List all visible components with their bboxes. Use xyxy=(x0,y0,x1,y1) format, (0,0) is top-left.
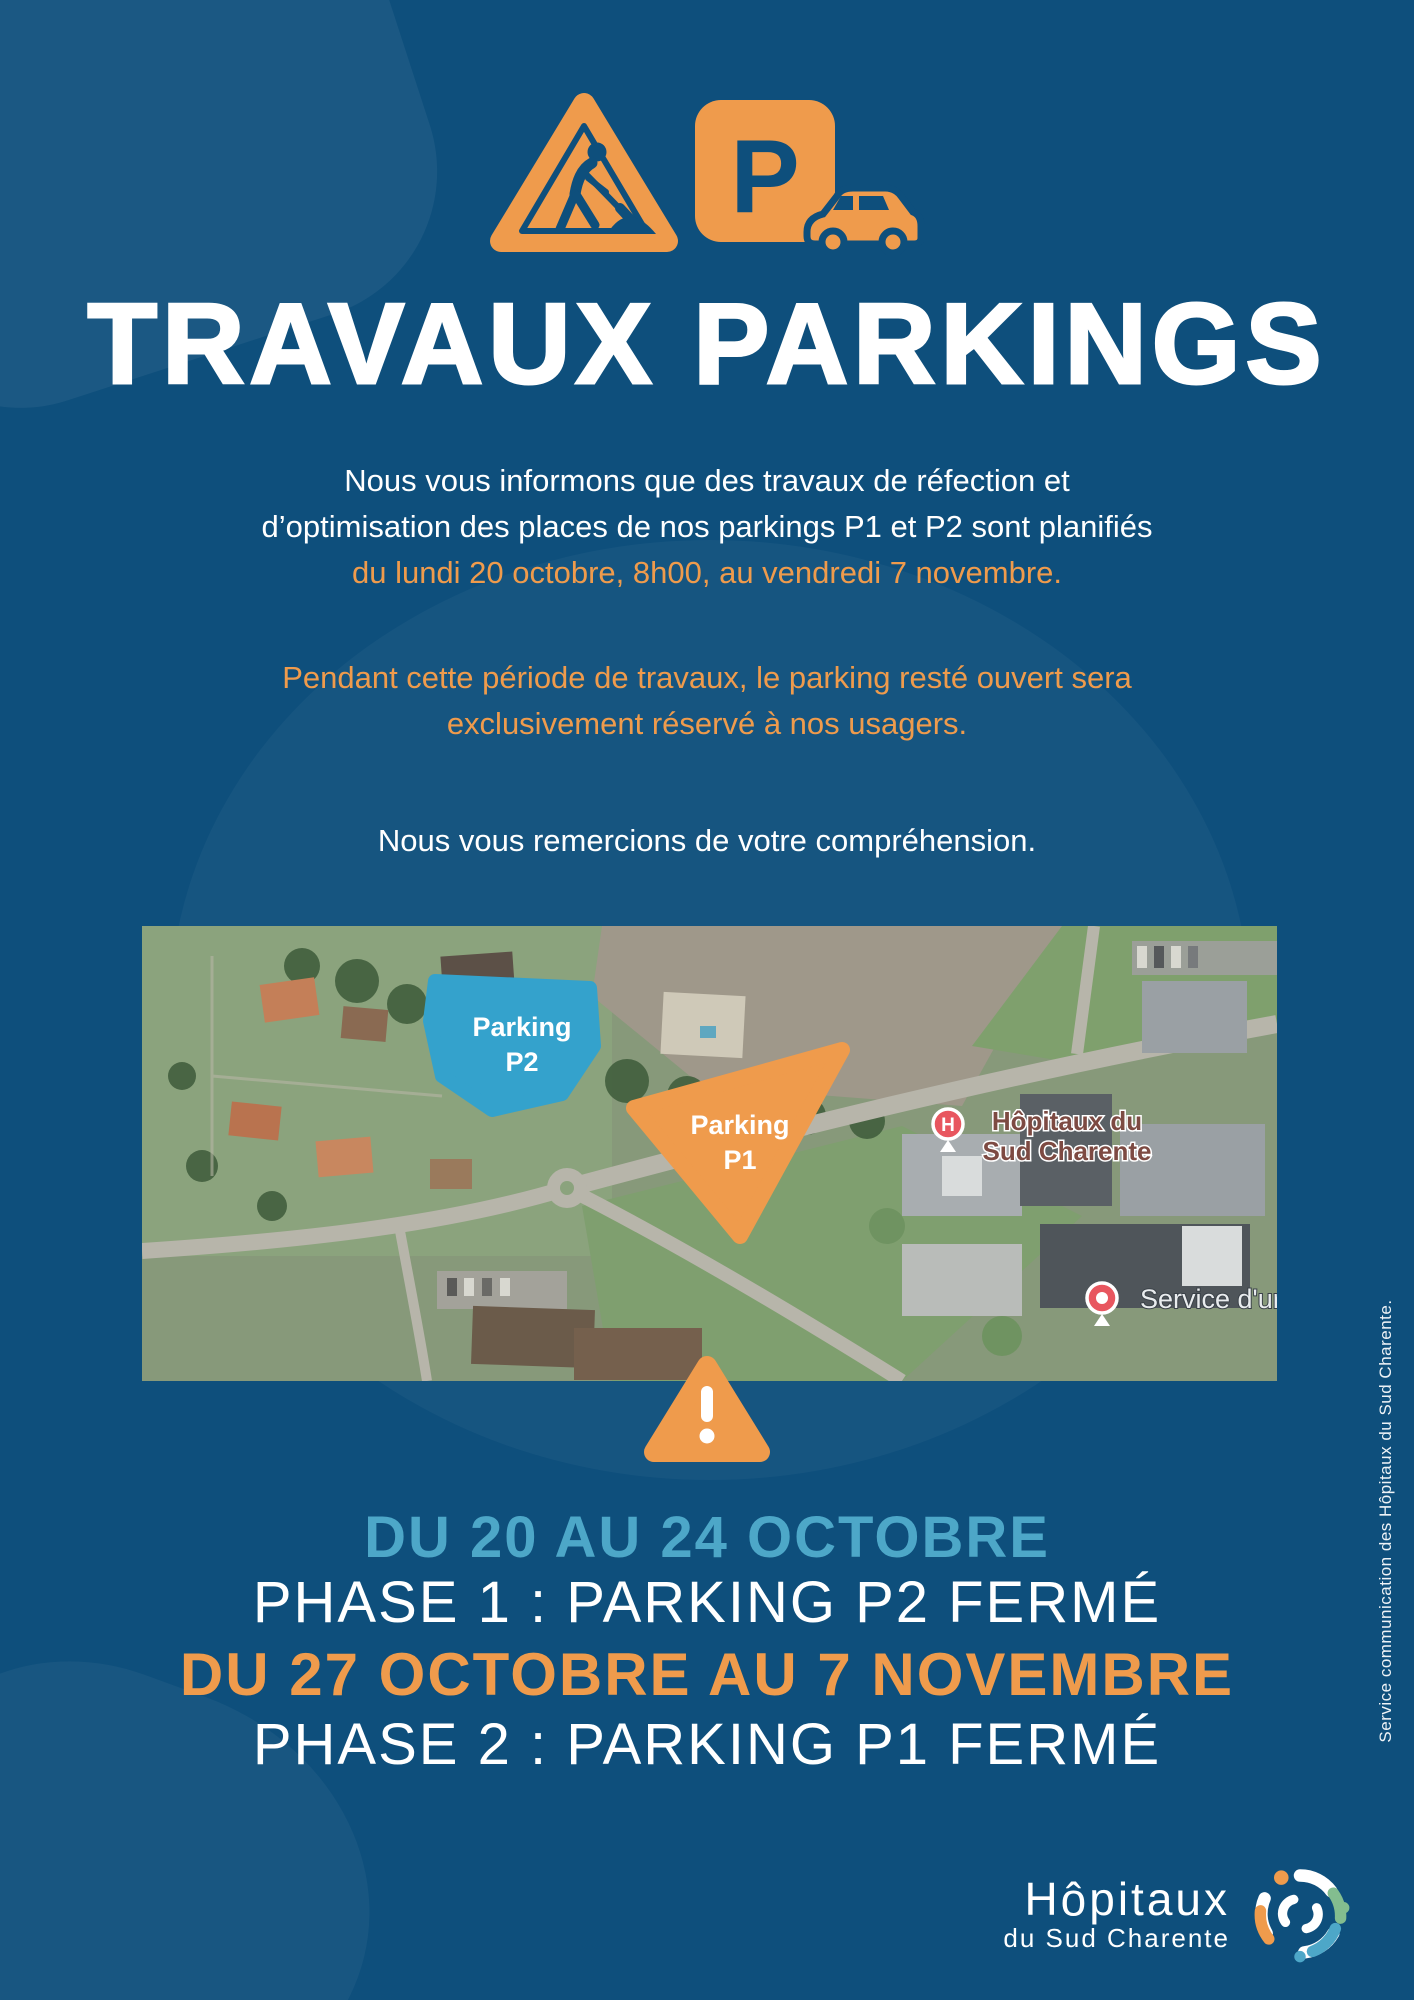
hospital-logo: Hôpitaux du Sud Charente xyxy=(1003,1862,1352,1966)
phase2-dates: DU 27 OCTOBRE AU 7 NOVEMBRE xyxy=(0,1636,1414,1714)
logo-line-1: Hôpitaux xyxy=(1024,1875,1230,1923)
intro-paragraph: Nous vous informons que des travaux de r… xyxy=(0,458,1414,596)
map-parking-p2-zone: Parking P2 xyxy=(430,981,594,1110)
notice-paragraph: Pendant cette période de travaux, le par… xyxy=(0,655,1414,747)
map-p1-label: Parking xyxy=(690,1110,789,1140)
hospital-logo-text: Hôpitaux du Sud Charente xyxy=(1003,1875,1230,1953)
parking-sign-icon: P xyxy=(693,90,925,255)
map-hospital-label: Hôpitaux du Sud Charente xyxy=(982,1106,1151,1166)
credit-vertical-text: Service communication des Hôpitaux du Su… xyxy=(1376,1271,1398,1771)
phase1-detail: PHASE 1 : PARKING P2 FERMÉ xyxy=(0,1570,1414,1636)
header-icons: P xyxy=(0,90,1414,255)
map-p2-label-2: P2 xyxy=(505,1047,538,1077)
poster: P TRAVAUX PARKINGS Nous vous informons q… xyxy=(0,0,1414,2000)
intro-dates-highlight: du lundi 20 octobre, 8h00, au vendredi 7… xyxy=(0,550,1414,596)
map-hospital-marker-letter: H xyxy=(941,1115,955,1136)
notice-line-2: exclusivement réservé à nos usagers. xyxy=(0,701,1414,747)
map-p1-label-2: P1 xyxy=(723,1145,756,1175)
parking-letter: P xyxy=(730,119,799,235)
warning-icon xyxy=(642,1350,772,1464)
phase1-dates: DU 20 AU 24 OCTOBRE xyxy=(0,1506,1414,1570)
thanks-line: Nous vous remercions de votre compréhens… xyxy=(0,818,1414,864)
notice-line-1: Pendant cette période de travaux, le par… xyxy=(0,655,1414,701)
intro-line-1: Nous vous informons que des travaux de r… xyxy=(0,458,1414,504)
aerial-map: Parking P2 Parking P1 H Hôpitaux du Sud … xyxy=(142,926,1277,1381)
svg-text:Sud Charente: Sud Charente xyxy=(982,1136,1151,1166)
map-p2-label: Parking xyxy=(472,1012,571,1042)
pinwheel-logo-icon xyxy=(1248,1862,1352,1966)
logo-line-2: du Sud Charente xyxy=(1003,1923,1230,1953)
phase2-detail: PHASE 2 : PARKING P1 FERMÉ xyxy=(0,1714,1414,1776)
svg-text:Hôpitaux du: Hôpitaux du xyxy=(992,1106,1142,1136)
roadworks-icon xyxy=(489,90,679,255)
intro-line-2: d’optimisation des places de nos parking… xyxy=(0,504,1414,550)
page-title: TRAVAUX PARKINGS xyxy=(0,288,1414,402)
phases-section: DU 20 AU 24 OCTOBRE PHASE 1 : PARKING P2… xyxy=(0,1506,1414,1776)
map-emergency-label: Service d'urg xyxy=(1140,1284,1277,1314)
